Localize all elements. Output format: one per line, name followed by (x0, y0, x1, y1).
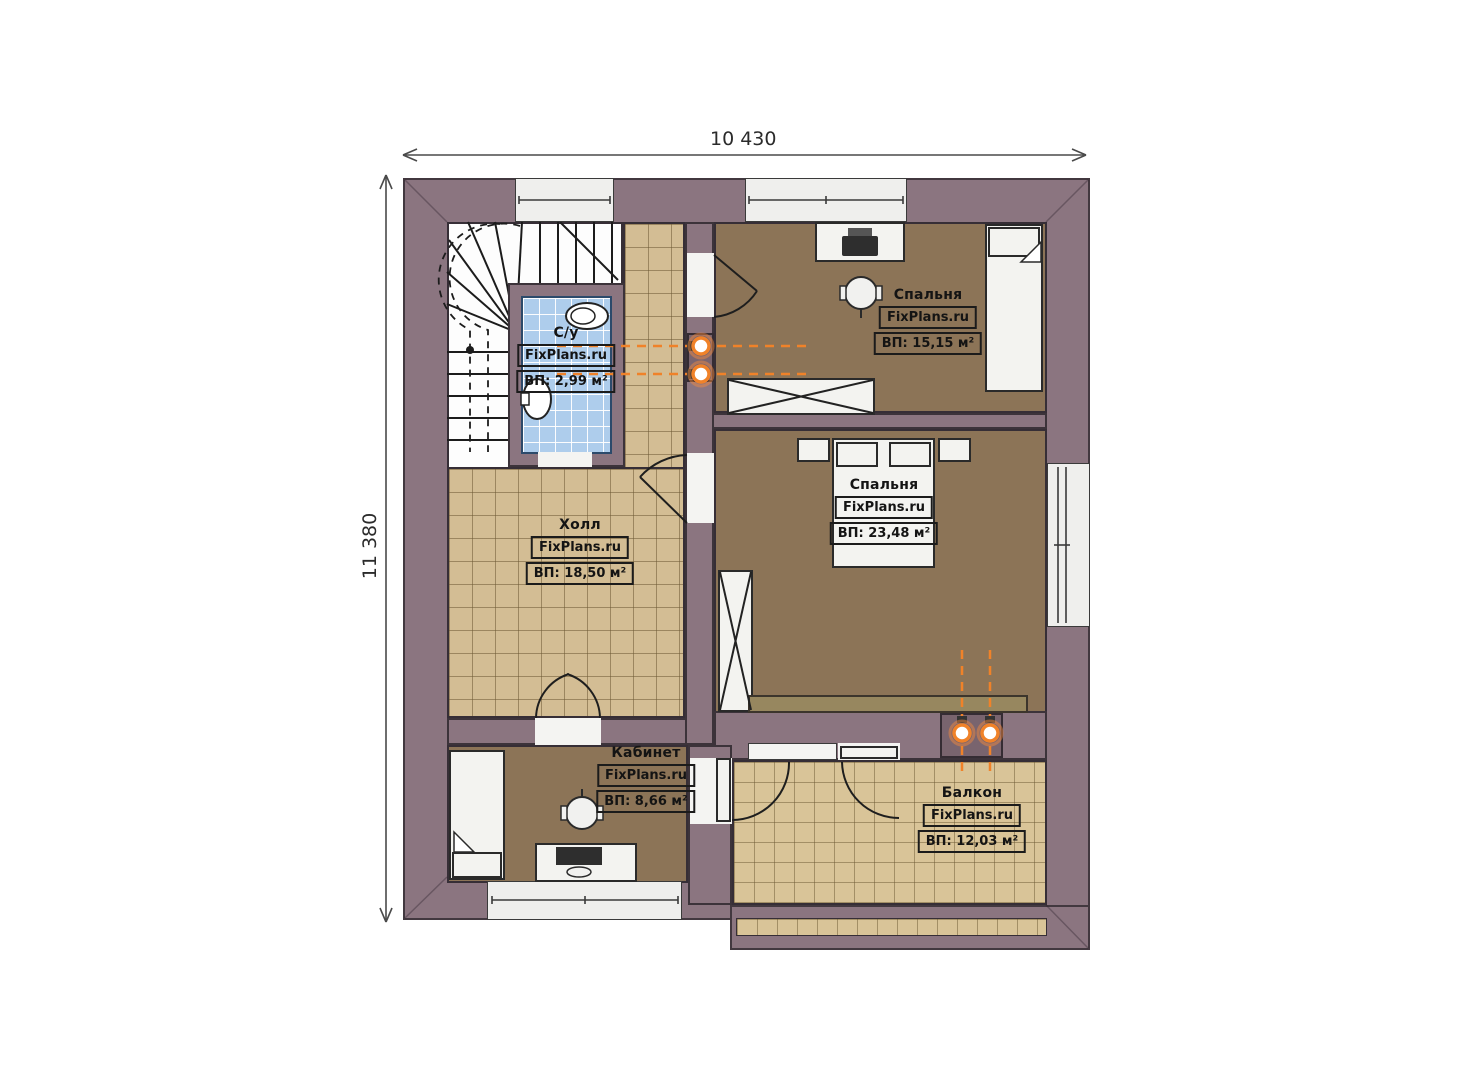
lamp-niche-balcony (940, 713, 1003, 758)
room-label-wc: С/у FixPlans.ru ВП: 2,99 м² (516, 325, 615, 393)
hall-floor (447, 467, 685, 718)
floor-plan-canvas: 10 430 11 380 С/у FixPlans.ru ВП: 2,99 м… (0, 0, 1473, 1080)
room-name: Спальня (894, 287, 963, 303)
room-brand: FixPlans.ru (531, 536, 629, 559)
hall-floor-strip (623, 222, 685, 470)
room-label-bedroom-small: Спальня FixPlans.ru ВП: 15,15 м² (874, 287, 982, 355)
wall-between-bedrooms (712, 413, 1047, 429)
window-top-bedroom (745, 178, 907, 222)
bathroom-door-opening (538, 452, 592, 467)
pillow-right (889, 442, 931, 467)
room-area: ВП: 8,66 м² (596, 790, 695, 813)
desk-office (535, 843, 637, 882)
window-bottom-office (487, 881, 682, 920)
room-name: Спальня (850, 477, 919, 493)
window-top-stairs (515, 178, 614, 222)
wardrobe-tall (718, 570, 753, 712)
room-brand: FixPlans.ru (835, 496, 933, 519)
lamp-niche-hall (687, 333, 714, 382)
nightstand-right (938, 438, 971, 462)
room-label-office: Кабинет FixPlans.ru ВП: 8,66 м² (596, 745, 695, 813)
balcony-floor-edge (736, 918, 1047, 936)
wardrobe (727, 378, 875, 415)
window-right-bedroom (1047, 463, 1090, 627)
room-area: ВП: 15,15 м² (874, 332, 982, 355)
room-name: Холл (559, 517, 601, 533)
room-area: ВП: 12,03 м² (918, 830, 1026, 853)
low-cabinet (748, 695, 1028, 713)
room-name: С/у (553, 325, 578, 341)
bedroom-small-door-opening (687, 253, 714, 317)
desk (815, 222, 905, 262)
room-label-hall: Холл FixPlans.ru ВП: 18,50 м² (526, 517, 634, 585)
room-area: ВП: 18,50 м² (526, 562, 634, 585)
dimension-top-label: 10 430 (710, 128, 776, 150)
room-area: ВП: 23,48 м² (830, 522, 938, 545)
room-brand: FixPlans.ru (517, 344, 615, 367)
balcony-sill-opening (748, 743, 837, 760)
door-leaf-office-balcony (716, 758, 731, 822)
nightstand-left (797, 438, 830, 462)
bedroom-large-door-opening (687, 453, 714, 523)
room-brand: FixPlans.ru (923, 804, 1021, 827)
room-brand: FixPlans.ru (597, 764, 695, 787)
room-name: Кабинет (611, 745, 680, 761)
door-leaf-balcony (840, 746, 898, 759)
room-area: ВП: 2,99 м² (516, 370, 615, 393)
dimension-left-label: 11 380 (359, 506, 381, 586)
room-brand: FixPlans.ru (879, 306, 977, 329)
room-label-bedroom-large: Спальня FixPlans.ru ВП: 23,48 м² (830, 477, 938, 545)
pillow-left (836, 442, 878, 467)
pillow (988, 227, 1040, 257)
office-door-opening (535, 718, 601, 745)
room-name: Балкон (942, 785, 1002, 801)
pillow-office (452, 852, 502, 878)
room-label-balcony: Балкон FixPlans.ru ВП: 12,03 м² (918, 785, 1026, 853)
